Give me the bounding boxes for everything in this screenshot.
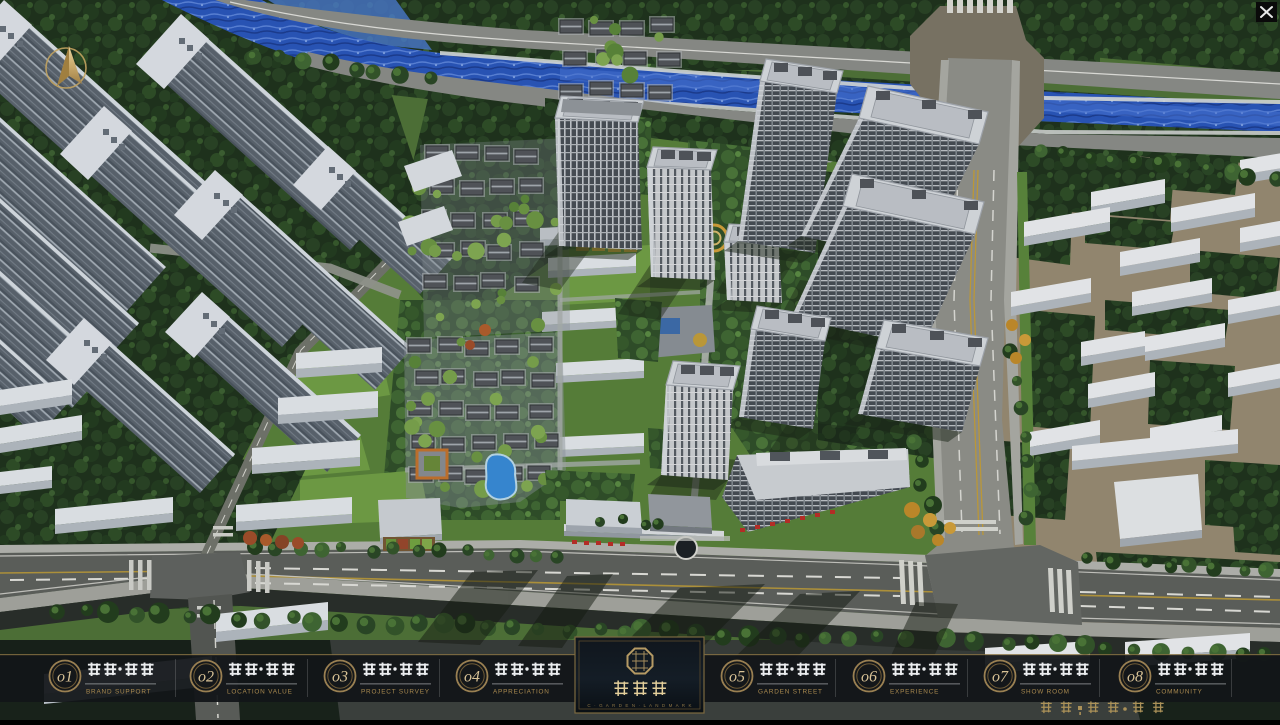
svg-text:GARDEN STREET: GARDEN STREET (758, 689, 823, 696)
svg-text:o3: o3 (332, 669, 348, 686)
svg-text:o8: o8 (1127, 669, 1143, 686)
svg-text:o1: o1 (57, 669, 73, 686)
svg-text:BRAND SUPPORT: BRAND SUPPORT (86, 689, 151, 696)
svg-text:LOCATION VALUE: LOCATION VALUE (227, 689, 293, 696)
svg-text:APPRECIATION: APPRECIATION (493, 689, 550, 696)
svg-text:PROJECT SURVEY: PROJECT SURVEY (361, 689, 430, 696)
svg-text:C · G A R D E N · L A N D M A: C · G A R D E N · L A N D M A R K (587, 703, 692, 708)
svg-text:o7: o7 (992, 669, 1009, 686)
svg-text:EXPERIENCE: EXPERIENCE (890, 689, 939, 696)
svg-text:o6: o6 (861, 669, 877, 686)
svg-text:o2: o2 (198, 669, 214, 686)
svg-text:o5: o5 (729, 669, 745, 686)
svg-text:COMMUNITY: COMMUNITY (1156, 689, 1203, 696)
svg-text:o4: o4 (464, 669, 480, 686)
svg-text:SHOW ROOM: SHOW ROOM (1021, 689, 1070, 696)
